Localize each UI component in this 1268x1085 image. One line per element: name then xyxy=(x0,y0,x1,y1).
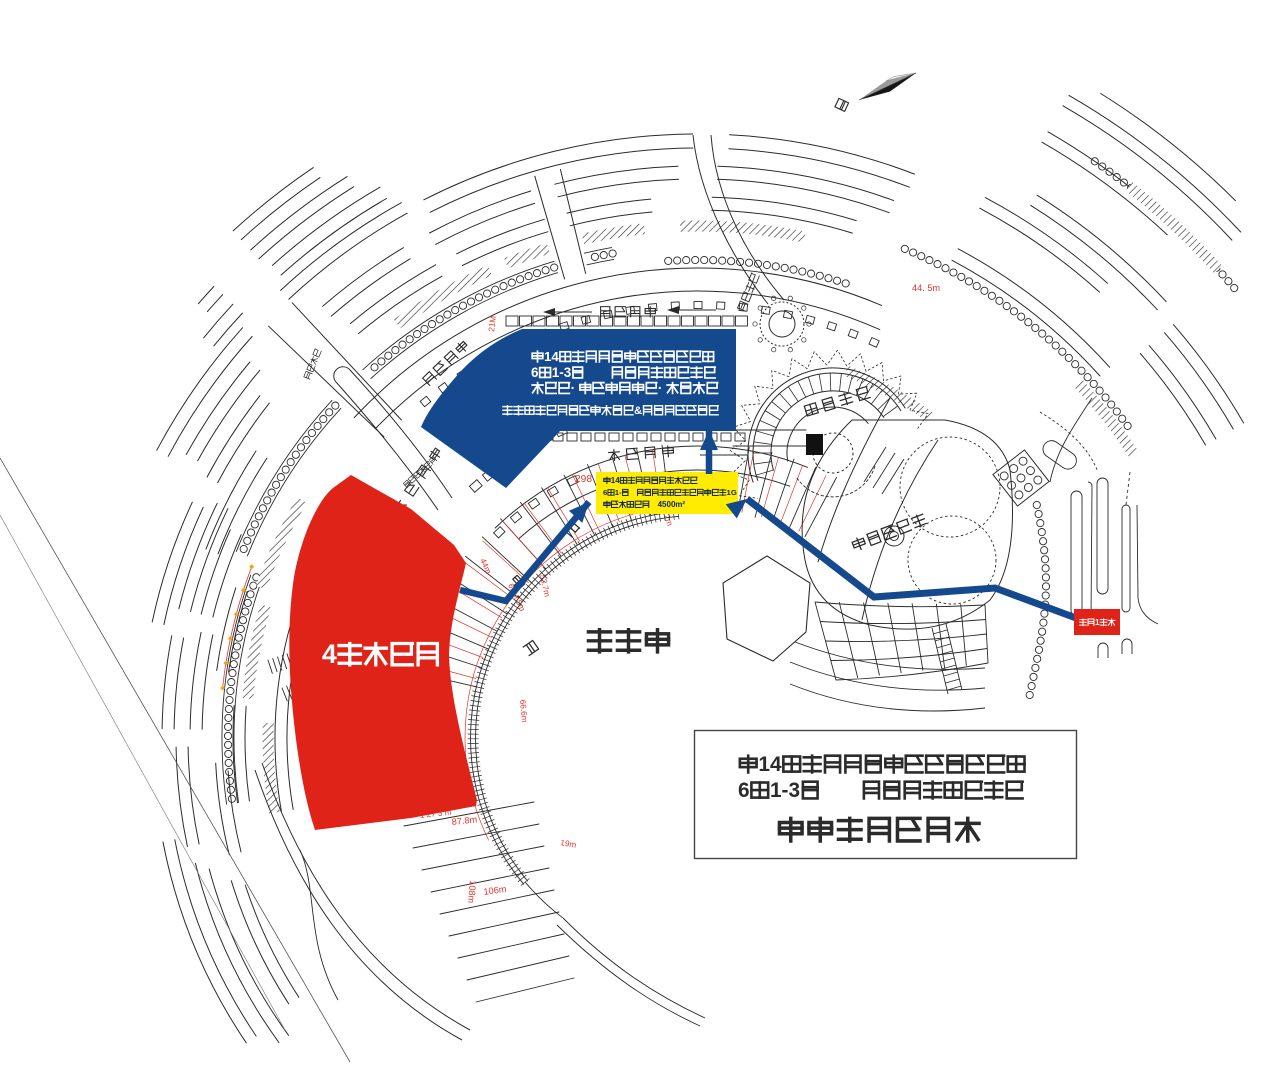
svg-text:14: 14 xyxy=(611,476,620,485)
svg-text:&: & xyxy=(634,405,642,417)
svg-text:6: 6 xyxy=(603,488,607,497)
svg-text:6: 6 xyxy=(531,365,539,380)
svg-text:1-3: 1-3 xyxy=(552,365,572,380)
svg-text:m²: m² xyxy=(675,500,685,509)
svg-text:298: 298 xyxy=(575,474,592,485)
svg-text:·: · xyxy=(658,381,663,396)
svg-text:108m: 108m xyxy=(466,880,478,904)
svg-text:14: 14 xyxy=(758,753,782,776)
svg-text:14: 14 xyxy=(544,349,559,364)
svg-text:4500: 4500 xyxy=(658,500,676,509)
svg-text:1-3: 1-3 xyxy=(770,779,800,802)
svg-text:44. 5m: 44. 5m xyxy=(912,283,940,293)
svg-text:1: 1 xyxy=(1095,618,1100,627)
svg-text:·: · xyxy=(571,381,576,396)
svg-text:1G: 1G xyxy=(727,488,737,497)
svg-text:6: 6 xyxy=(738,779,750,802)
svg-text:1-: 1- xyxy=(615,488,622,497)
svg-text:4: 4 xyxy=(322,639,337,669)
